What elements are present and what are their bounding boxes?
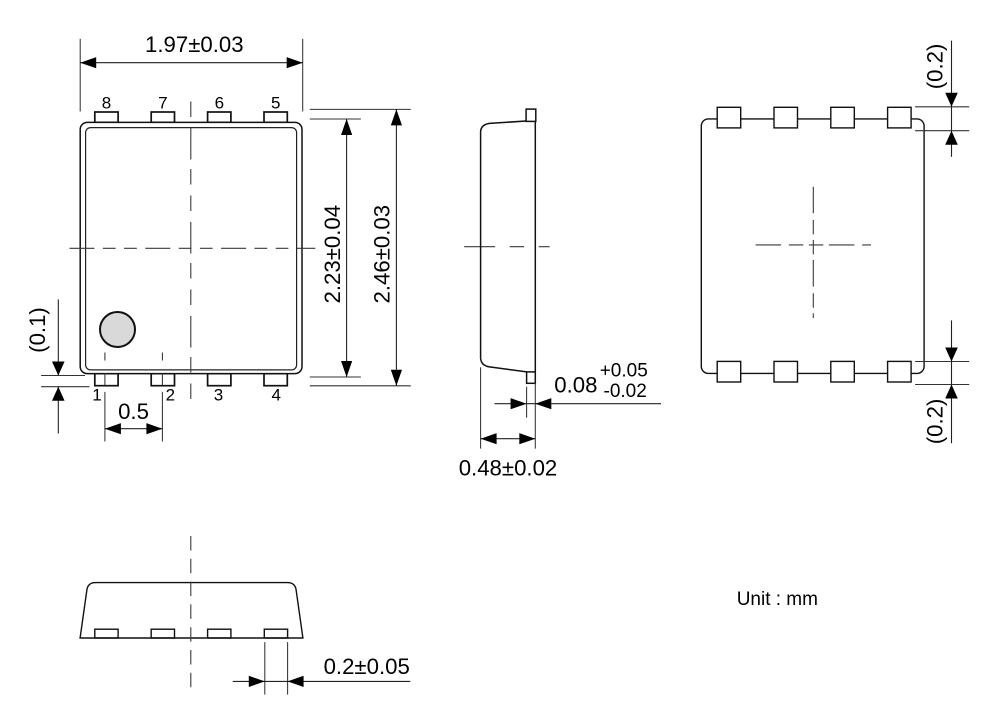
svg-text:8: 8 bbox=[102, 94, 111, 113]
svg-text:(0.2): (0.2) bbox=[923, 399, 948, 445]
svg-text:(0.1): (0.1) bbox=[25, 307, 50, 353]
svg-text:6: 6 bbox=[215, 94, 224, 113]
svg-text:5: 5 bbox=[271, 94, 280, 113]
svg-text:Unit : mm: Unit : mm bbox=[737, 589, 818, 610]
svg-text:2: 2 bbox=[166, 386, 175, 405]
svg-text:7: 7 bbox=[158, 94, 167, 113]
svg-text:2.46±0.03: 2.46±0.03 bbox=[370, 205, 395, 304]
svg-text:0.5: 0.5 bbox=[118, 399, 149, 424]
svg-text:+0.05: +0.05 bbox=[600, 361, 648, 382]
svg-text:3: 3 bbox=[214, 386, 223, 405]
svg-text:1: 1 bbox=[92, 386, 101, 405]
svg-text:(0.2): (0.2) bbox=[923, 44, 948, 90]
svg-text:0.2±0.05: 0.2±0.05 bbox=[324, 654, 410, 679]
svg-text:0.48±0.02: 0.48±0.02 bbox=[459, 456, 558, 481]
svg-text:1.97±0.03: 1.97±0.03 bbox=[145, 32, 244, 57]
svg-text:4: 4 bbox=[271, 386, 280, 405]
svg-text:-0.02: -0.02 bbox=[604, 381, 647, 402]
svg-text:0.08: 0.08 bbox=[554, 372, 597, 397]
svg-text:2.23±0.04: 2.23±0.04 bbox=[320, 205, 345, 304]
